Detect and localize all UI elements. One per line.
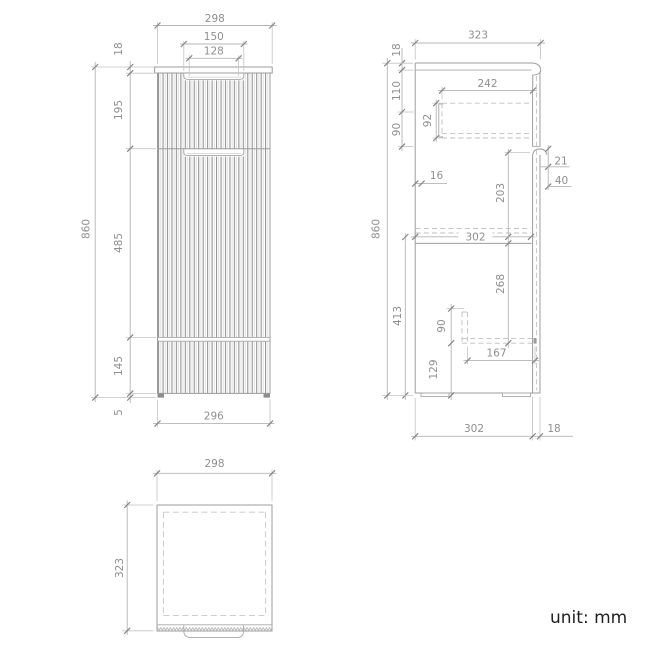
dim-side-back-clearance: 16 <box>430 170 444 182</box>
unit-note: unit: mm <box>550 608 627 628</box>
foot-left <box>158 394 165 398</box>
dim-front-base-height: 145 <box>113 356 125 376</box>
dim-side-foot-bracket-depth: 167 <box>486 348 506 360</box>
dim-side-body-depth: 302 <box>464 423 484 435</box>
dim-side-countertop-thickness: 18 <box>391 43 403 56</box>
dim-top-overall-depth: 323 <box>114 558 126 578</box>
dim-side-handle-lip: 21 <box>554 155 567 167</box>
dim-front-foot-height: 5 <box>113 409 125 416</box>
fluted-front-upper <box>158 74 270 338</box>
dim-side-drawer-top-offset: 110 <box>391 81 403 101</box>
technical-drawing-canvas: 298 150 128 18 195 485 145 5 <box>0 0 650 650</box>
dim-front-body-width: 296 <box>204 411 224 423</box>
dim-side-front-panel-thickness: 18 <box>547 423 560 435</box>
dim-side-handle-zone: 40 <box>555 175 568 187</box>
dim-side-shelf-clearance: 268 <box>495 274 507 294</box>
dim-top-overall-width: 298 <box>204 458 224 470</box>
dim-side-drawer-box-depth: 242 <box>477 78 497 90</box>
dim-front-door-height: 485 <box>113 233 125 253</box>
dim-front-handle-recess-width: 150 <box>204 31 224 43</box>
dim-side-plinth-height: 129 <box>428 359 440 379</box>
dim-side-foot-bracket-height: 90 <box>436 319 448 332</box>
dim-side-drawer-zone-height: 90 <box>391 123 403 136</box>
dim-front-drawer-height: 195 <box>113 100 125 120</box>
dim-side-internal-depth: 302 <box>465 232 485 244</box>
page-background <box>0 0 650 650</box>
dim-front-overall-width: 298 <box>205 13 225 25</box>
fluted-front-base <box>158 341 270 393</box>
dim-side-overall-depth: 323 <box>468 30 488 42</box>
foot-right <box>264 394 271 398</box>
fluted-edge-plan <box>158 627 272 631</box>
front-view <box>155 67 273 398</box>
dim-side-lower-section-height: 413 <box>392 306 404 326</box>
dim-front-countertop-thickness: 18 <box>113 42 125 55</box>
dim-front-handle-inner-width: 128 <box>204 46 224 58</box>
dim-front-overall-height: 860 <box>81 219 93 239</box>
dim-side-drawer-box-height: 92 <box>422 114 434 127</box>
dim-side-upper-section-height: 203 <box>495 183 507 203</box>
dim-side-overall-height: 860 <box>371 219 383 239</box>
